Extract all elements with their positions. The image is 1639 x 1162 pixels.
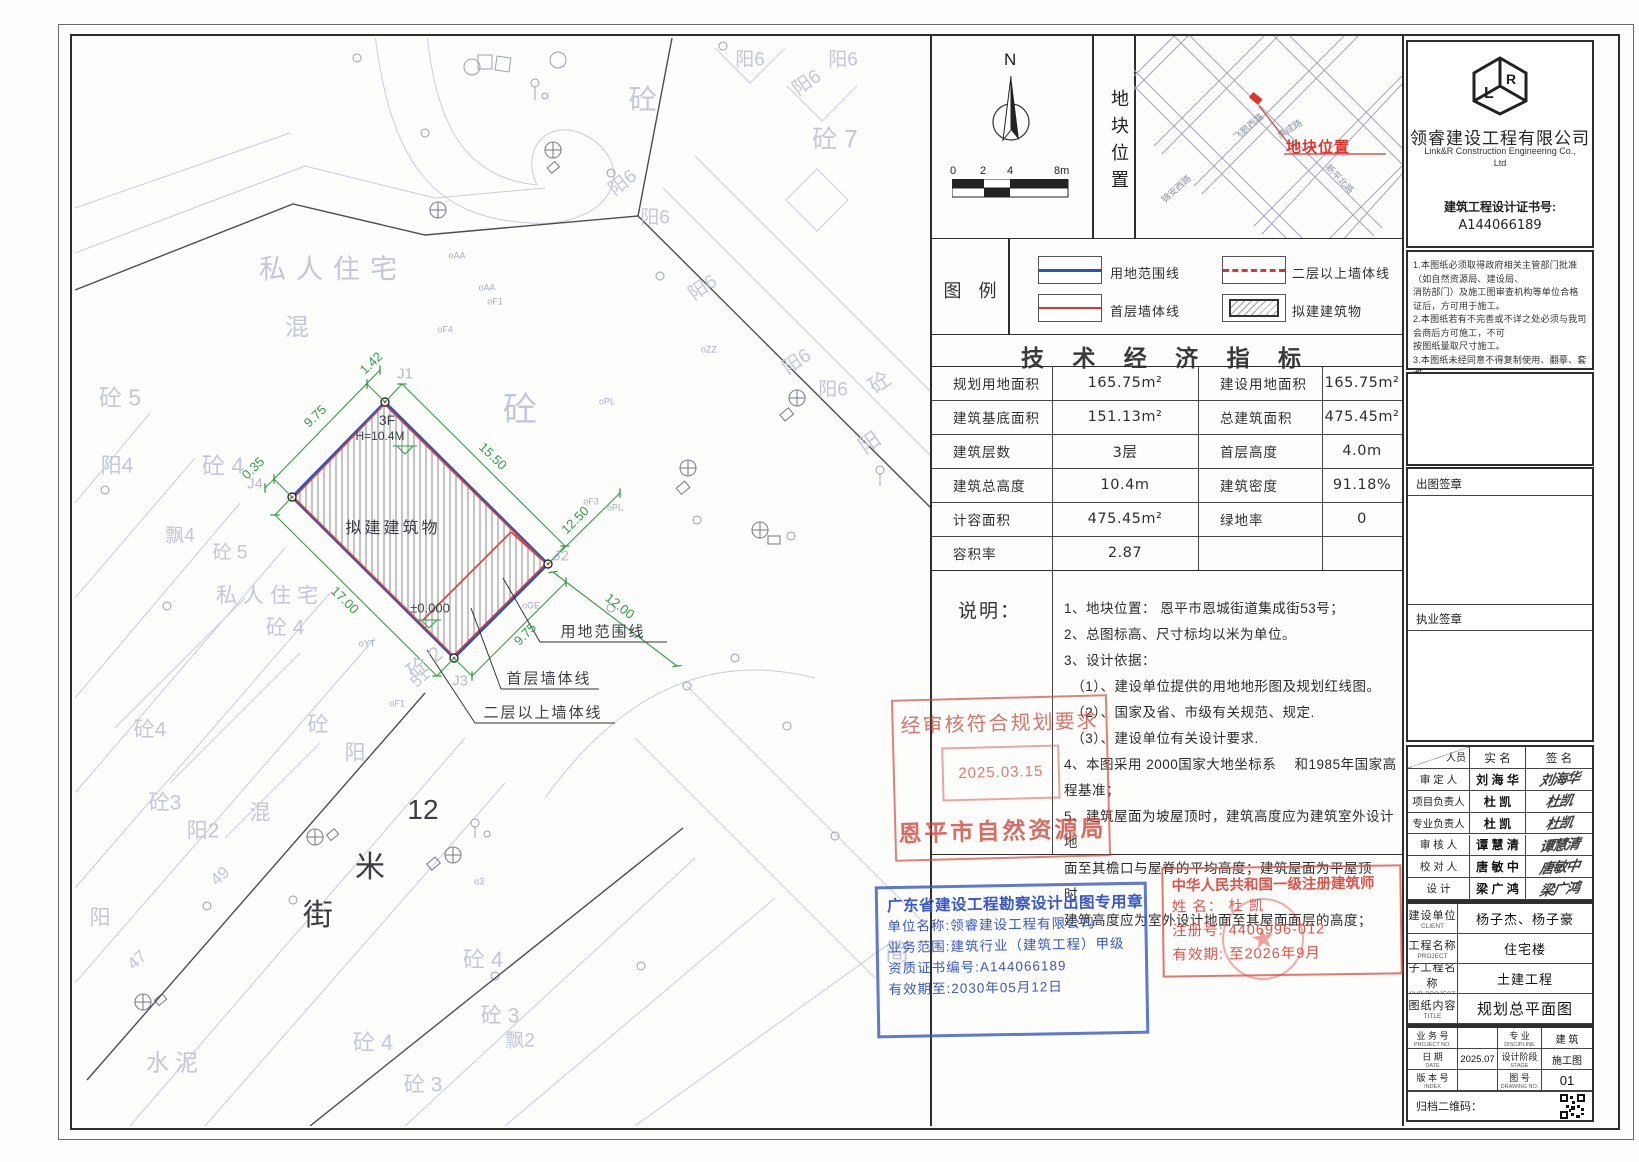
legend-label-boundary: 用地范围线 xyxy=(1110,263,1180,282)
personnel-signature: 谭慧清 xyxy=(1526,835,1592,857)
personnel-signature: 唐敏中 xyxy=(1526,856,1592,878)
blue-stamp-line2: 业务范围:建筑行业（建筑工程）甲级 xyxy=(888,933,1136,958)
map-label: 1.42 xyxy=(357,350,384,377)
map-label: 阳6 xyxy=(640,209,670,228)
company-note-line: 按图纸量取尺寸施工。 xyxy=(1413,340,1587,354)
map-label: 阳 xyxy=(345,743,366,764)
scale-tick: 8m xyxy=(1054,165,1069,177)
map-label: oF4 xyxy=(437,326,453,335)
tech-value: 151.13m² xyxy=(1052,400,1198,434)
personnel-signature: 杜凯 xyxy=(1526,791,1592,813)
map-label: 砼 3 xyxy=(481,1006,520,1027)
map-label: 47 xyxy=(124,947,149,972)
personnel-role: 审 定 人 xyxy=(1408,769,1470,791)
titleblock-label: 设计阶段STAGE xyxy=(1498,1049,1542,1070)
architect-stamp-title: 中华人民共和国一级注册建筑师 xyxy=(1171,871,1391,895)
blue-stamp-line4: 有效期至:2030年05月12日 xyxy=(888,975,1136,1000)
personnel-role: 专业负责人 xyxy=(1408,813,1470,835)
tech-value: 165.75m² xyxy=(1052,366,1198,400)
map-label: 15.50 xyxy=(477,440,509,472)
map-label: 砼 7 xyxy=(812,128,858,153)
map-label: 阳6 xyxy=(735,51,765,70)
legend-label-first-wall: 首层墙体线 xyxy=(1110,301,1180,320)
titleblock-label: 日 期DATE xyxy=(1408,1049,1458,1070)
note-line: 1、地块位置： 恩平市恩城街道集成街53号； xyxy=(1064,596,1398,622)
map-label: 混 xyxy=(250,803,271,824)
notes-label: 说明： xyxy=(958,596,1021,623)
map-label: 私人住宅 xyxy=(216,586,324,607)
personnel-name: 杜 凯 xyxy=(1470,791,1526,813)
design-license-stamp: 广东省建设工程勘察设计出图专用章 单位名称:领睿建设工程有限公司 业务范围:建筑… xyxy=(875,882,1150,1039)
qr-label: 归档二维码： xyxy=(1416,1098,1482,1114)
practice-seal-label: 执业签章 xyxy=(1416,611,1462,627)
legend-swatch-boundary xyxy=(1038,256,1102,284)
tech-value xyxy=(1322,536,1402,570)
map-label: 阳2 xyxy=(187,821,220,842)
map-marker-label: 地块位置 xyxy=(1286,136,1350,157)
map-label: 17.00 xyxy=(329,584,361,616)
note-line: 3、设计依据： xyxy=(1064,648,1398,674)
map-label: J2 xyxy=(553,549,569,564)
map-label: oAA xyxy=(478,284,495,293)
svg-text:R: R xyxy=(1506,71,1516,87)
map-label: 3F xyxy=(379,413,395,427)
map-label: 阳6 xyxy=(818,381,848,400)
personnel-name: 谭 慧 清 xyxy=(1470,835,1526,857)
map-label: 砼3 xyxy=(149,793,182,814)
personnel-header-role: 人员 xyxy=(1408,747,1470,769)
map-label: 首层墙体线 xyxy=(506,672,591,687)
map-label: 砼 4 xyxy=(463,949,503,971)
svg-text:L: L xyxy=(1484,85,1494,102)
map-label: oYT xyxy=(359,640,376,649)
personnel-role: 审 核 人 xyxy=(1408,835,1470,857)
building-hatch-sample xyxy=(1229,299,1279,317)
north-arrow: N xyxy=(971,50,1051,160)
map-label: 砼 xyxy=(629,86,657,114)
tech-value: 3层 xyxy=(1052,434,1198,468)
tech-value: 165.75m² xyxy=(1322,366,1402,400)
titleblock-label: 业 务 号PROJECT NO. xyxy=(1408,1028,1458,1049)
tech-value: 10.4m xyxy=(1052,468,1198,502)
personnel-role: 设 计 xyxy=(1408,878,1470,900)
personnel-signature: 梁广鸿 xyxy=(1526,878,1592,900)
company-logo-icon: L R xyxy=(1470,56,1530,116)
personnel-signature: 杜凯 xyxy=(1526,813,1592,835)
map-label: ±0.000 xyxy=(410,602,450,615)
map-label: 阳6 xyxy=(789,67,824,100)
legend-swatch-building xyxy=(1222,294,1286,322)
map-label: 砼 xyxy=(503,393,537,427)
map-label: 用地范围线 xyxy=(560,625,645,640)
legend-swatch-upper-wall xyxy=(1222,256,1286,284)
map-label: 混 xyxy=(285,316,309,340)
company-name-en: Link&R Construction Engineering Co., xyxy=(1408,146,1592,156)
personnel-signature: 刘海华 xyxy=(1526,769,1592,791)
map-label: o3 xyxy=(474,878,484,887)
map-label: oF1 xyxy=(389,700,405,709)
map-label: 砼 xyxy=(865,368,894,397)
note-line: （3）、建设单位有关设计要求. xyxy=(1064,726,1398,752)
legend-label-building: 拟建建筑物 xyxy=(1292,301,1362,320)
map-label: 砼 4 xyxy=(202,455,244,478)
boundary-line-sample xyxy=(1039,269,1101,272)
company-note-line: 消防部门）及施工图审查机构等单位合格证后，方可用于施工。 xyxy=(1413,286,1587,313)
project-row-label: 图纸内容TITLE xyxy=(1408,994,1458,1024)
legend-label-upper-wall: 二层以上墙体线 xyxy=(1292,263,1390,282)
tech-value: 2.87 xyxy=(1052,536,1198,570)
planning-approval-stamp: 经审核符合规划要求 2025.03.15 恩平市自然资源局 xyxy=(891,694,1111,862)
map-label: 拟建建筑物 xyxy=(345,521,440,537)
legend-swatch-first-wall xyxy=(1038,294,1102,322)
planning-stamp-date: 2025.03.15 xyxy=(941,744,1060,801)
project-row-label: 工程名称PROJECT xyxy=(1408,934,1458,964)
project-info-table: 建设单位CLIENT杨子杰、杨子豪工程名称PROJECT住宅楼子工程名称SUB-… xyxy=(1406,902,1594,1026)
note-line: （2）、国家及省、市级有关规范、规定. xyxy=(1064,700,1398,726)
map-label: oF1 xyxy=(487,298,503,307)
scale-tick: 4 xyxy=(1007,165,1013,177)
seal-star-icon: ★ xyxy=(1248,921,1277,955)
project-row-label: 建设单位CLIENT xyxy=(1408,904,1458,934)
map-streets xyxy=(1134,36,1402,238)
titleblock-value xyxy=(1458,1070,1498,1091)
signature-block: 出图签章 执业签章 xyxy=(1406,467,1594,742)
cert-label: 建筑工程设计证书号: xyxy=(1408,198,1592,215)
map-label: oF3 xyxy=(583,498,599,507)
planning-stamp-text: 经审核符合规划要求 xyxy=(893,704,1106,739)
map-label: 阳6 xyxy=(685,272,720,305)
map-label: 米 xyxy=(355,853,385,883)
map-label: J1 xyxy=(397,367,413,382)
titleblock-label: 版 本 号INDEX xyxy=(1408,1070,1458,1091)
archive-qr-code xyxy=(1560,1094,1585,1119)
map-label: oPL xyxy=(599,398,615,407)
map-label: 私人住宅 xyxy=(259,257,407,284)
project-row-value: 规划总平面图 xyxy=(1458,994,1592,1024)
location-map: 地块位置 飞鹅西路集成路新平北路锦安西路 xyxy=(1134,36,1402,238)
map-label: 阳 xyxy=(90,908,111,929)
titleblock-value: 施工图 xyxy=(1542,1049,1592,1070)
map-label: J3 xyxy=(452,674,468,689)
tech-value: 91.18% xyxy=(1322,468,1402,502)
map-label: 砼 5 xyxy=(213,544,248,563)
map-label: 阳6 xyxy=(605,166,640,199)
map-label: 12.00 xyxy=(603,591,637,621)
personnel-name: 杜 凯 xyxy=(1470,813,1526,835)
blue-stamp-title: 广东省建设工程勘察设计出图专用章 xyxy=(887,890,1135,916)
project-row-value: 土建工程 xyxy=(1458,964,1592,994)
map-label: 二层以上墙体线 xyxy=(483,706,602,721)
map-label: 12.50 xyxy=(559,504,591,536)
map-label: 阳 xyxy=(855,428,884,457)
map-label: 9.75 xyxy=(511,620,538,647)
north-label: N xyxy=(1004,50,1016,70)
personnel-name: 刘 海 华 xyxy=(1470,769,1526,791)
note-line: 5、建筑屋面为坡屋顶时，建筑高度应为建筑室外设计地 xyxy=(1064,804,1398,856)
location-strip-label: 地块位置 xyxy=(1096,58,1132,228)
map-label: 飘4 xyxy=(165,527,195,546)
map-label: 砼 4 xyxy=(353,1032,393,1054)
personnel-header-signature: 签 名 xyxy=(1526,747,1592,769)
personnel-table: 人员实 名签 名审 定 人刘 海 华刘海华项目负责人杜 凯杜凯专业负责人杜 凯杜… xyxy=(1406,745,1594,902)
upper-wall-line-sample xyxy=(1223,269,1285,272)
titleblock-label: 图 号DRAWING NO. xyxy=(1498,1070,1542,1091)
titleblock-value xyxy=(1458,1028,1498,1049)
map-label: 阳6 xyxy=(779,346,814,379)
map-label: 阳6 xyxy=(828,51,858,70)
personnel-header-name: 实 名 xyxy=(1470,747,1526,769)
company-note-line: 2.本图纸若有不完善或不详之处必须与我司会商后方可施工，不可 xyxy=(1413,313,1587,340)
cert-number: A144066189 xyxy=(1408,218,1592,233)
scale-bar: 0 2 4 8m xyxy=(950,165,1074,205)
planning-stamp-agency: 恩平市自然资源局 xyxy=(896,809,1109,849)
map-label: oZZ xyxy=(701,346,717,355)
legend-title: 图 例 xyxy=(938,277,1008,303)
map-label: 砼 4 xyxy=(266,618,305,639)
tech-value: 0 xyxy=(1322,502,1402,536)
company-block: L R 领睿建设工程有限公司 Link&R Construction Engin… xyxy=(1406,40,1594,248)
map-label: 砼 3 xyxy=(404,1075,443,1096)
map-label: oAA xyxy=(448,252,465,261)
map-label: H=10.4M xyxy=(355,430,404,442)
map-label: 12 xyxy=(407,796,438,824)
map-label: 水泥 xyxy=(146,1052,204,1075)
note-line: 4、本图采用 2000国家大地坐标系 和1985年国家高程基准； xyxy=(1064,752,1398,804)
company-note-line: 1.本图纸必须取得政府相关主管部门批准（如自然资源局、建设局、 xyxy=(1413,259,1587,286)
titleblock-value: 01 xyxy=(1542,1070,1592,1091)
company-name-en2: Ltd xyxy=(1408,158,1592,168)
first-wall-line-sample xyxy=(1039,307,1101,309)
drawing-labels-layer: 私人住宅混砼 5阳4砼 4飘4砼 5私人住宅砼 4砼 2砼砼砼 7阳6阳6阳6阳… xyxy=(75,38,931,1126)
map-label: oGE xyxy=(522,602,540,611)
map-label: 49 xyxy=(207,863,232,888)
map-label: 飘2 xyxy=(505,1032,535,1051)
tech-value: 475.45m² xyxy=(1322,400,1402,434)
scale-tick: 2 xyxy=(980,165,986,177)
map-label: 街 xyxy=(303,901,333,931)
tech-value: 4.0m xyxy=(1322,434,1402,468)
map-label: oPL xyxy=(607,504,623,513)
scale-tick: 0 xyxy=(950,165,956,177)
blank-box xyxy=(1406,372,1594,466)
project-row-value: 杨子杰、杨子豪 xyxy=(1458,904,1592,934)
drawing-sheet: 私人住宅混砼 5阳4砼 4飘4砼 5私人住宅砼 4砼 2砼砼砼 7阳6阳6阳6阳… xyxy=(0,0,1639,1162)
titleblock-label: 专 业DISCIPLINE xyxy=(1498,1028,1542,1049)
personnel-name: 梁 广 鸿 xyxy=(1470,878,1526,900)
map-label: 砼 5 xyxy=(99,387,141,410)
titleblock-value: 2025.07 xyxy=(1458,1049,1498,1070)
map-label: 9.75 xyxy=(301,403,328,430)
personnel-role: 项目负责人 xyxy=(1408,791,1470,813)
project-row-label: 子工程名称SUB-PROJECT xyxy=(1408,964,1458,994)
map-label: 砼 xyxy=(308,715,329,736)
map-label: 阳4 xyxy=(101,456,134,477)
site-plan-drawing: 私人住宅混砼 5阳4砼 4飘4砼 5私人住宅砼 4砼 2砼砼砼 7阳6阳6阳6阳… xyxy=(75,38,931,1126)
company-notes-block: 1.本图纸必须取得政府相关主管部门批准（如自然资源局、建设局、消防部门）及施工图… xyxy=(1406,250,1594,370)
project-row-value: 住宅楼 xyxy=(1458,934,1592,964)
titleblock-value: 建 筑 xyxy=(1542,1028,1592,1049)
personnel-role: 校 对 人 xyxy=(1408,856,1470,878)
issue-seal-label: 出图签章 xyxy=(1416,476,1462,492)
note-line: （1）、建设单位提供的用地地形图及规划红线图。 xyxy=(1064,674,1398,700)
tech-value: 475.45m² xyxy=(1052,502,1198,536)
map-label: 砼4 xyxy=(134,720,167,741)
personnel-name: 唐 敏 中 xyxy=(1470,856,1526,878)
note-line: 2、总图标高、尺寸标均以米为单位。 xyxy=(1064,622,1398,648)
titleblock-grid: 业 务 号PROJECT NO.专 业DISCIPLINE建 筑日 期DATE2… xyxy=(1406,1026,1594,1122)
